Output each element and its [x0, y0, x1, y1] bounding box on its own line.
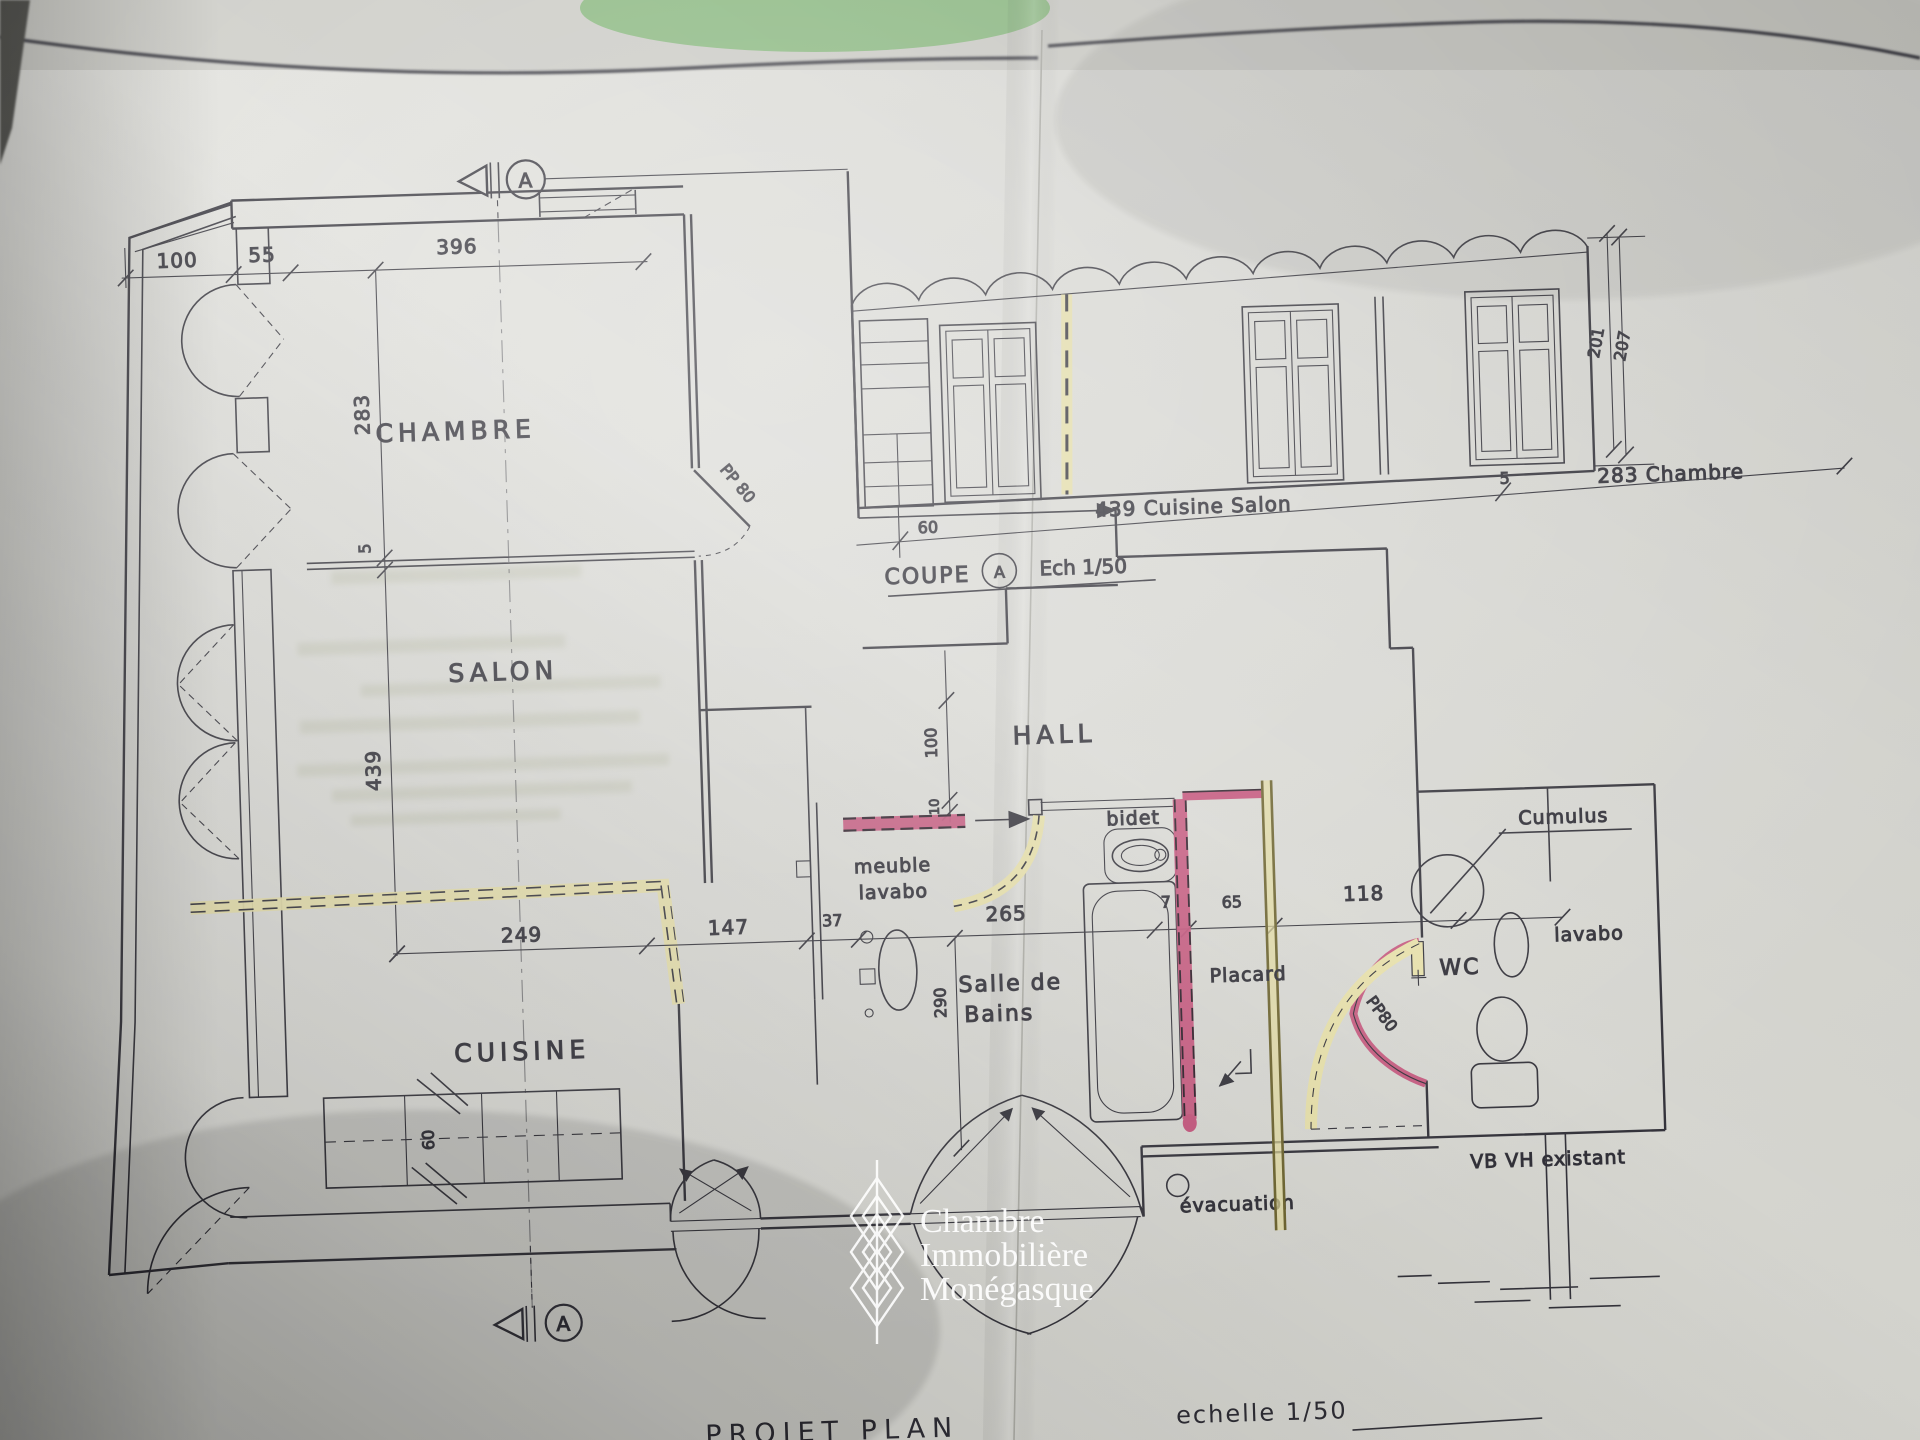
- dim-396: 396: [436, 234, 478, 259]
- room-label-cuisine: CUISINE: [454, 1035, 591, 1068]
- photographed-floor-plan: A 100 55 396 283 5 439: [0, 0, 1920, 1440]
- section-letter-top: A: [518, 168, 533, 192]
- dim-283: 283: [349, 394, 374, 436]
- dim-65: 65: [1221, 892, 1242, 912]
- dim-290: 290: [930, 987, 950, 1018]
- plan-photo-canvas: A 100 55 396 283 5 439: [0, 0, 1920, 1440]
- coupe-scale: Ech 1/50: [1039, 554, 1127, 581]
- room-label-sdb-2: Bains: [964, 1001, 1035, 1028]
- dim-10: 10: [927, 798, 943, 815]
- dim-283-chambre: 283 Chambre: [1597, 459, 1744, 488]
- dim-55: 55: [248, 242, 276, 267]
- meuble-label-2: lavabo: [858, 880, 928, 904]
- lavabo-label: lavabo: [1554, 922, 1624, 946]
- dim-5: 5: [355, 543, 374, 554]
- dim-100-hall: 100: [921, 727, 941, 758]
- dim-7: 7: [1160, 892, 1171, 911]
- dim-5-section: 5: [1499, 469, 1510, 488]
- dim-147: 147: [707, 915, 749, 940]
- dim-100: 100: [156, 248, 198, 273]
- placard-label: Placard: [1209, 963, 1287, 987]
- coupe-label: COUPE: [884, 563, 971, 591]
- watermark-line-1: Chambre: [920, 1203, 1045, 1240]
- meuble-label-1: meuble: [854, 854, 932, 878]
- coupe-marker: A: [994, 563, 1006, 582]
- dim-118: 118: [1343, 881, 1385, 906]
- dim-37: 37: [822, 911, 843, 931]
- dim-60-kitchen: 60: [419, 1129, 439, 1150]
- watermark-line-3: Monégasque: [920, 1271, 1094, 1308]
- section-demolished-wall: [1061, 294, 1073, 494]
- room-label-wc: WC: [1439, 955, 1481, 981]
- dim-249: 249: [501, 922, 543, 947]
- room-label-sdb-1: Salle de: [958, 970, 1062, 998]
- watermark-line-2: Immobilière: [920, 1237, 1088, 1274]
- room-label-hall: HALL: [1012, 719, 1097, 751]
- cumulus-label: Cumulus: [1518, 805, 1609, 830]
- title-scale: echelle 1/50: [1176, 1396, 1348, 1429]
- dim-265: 265: [985, 901, 1027, 926]
- room-label-chambre: CHAMBRE: [375, 414, 536, 448]
- dim-60-section: 60: [917, 518, 938, 538]
- room-label-salon: SALON: [448, 656, 559, 688]
- bidet-label: bidet: [1106, 807, 1160, 831]
- section-letter-bottom: A: [556, 1312, 571, 1336]
- dim-439: 439: [361, 749, 386, 791]
